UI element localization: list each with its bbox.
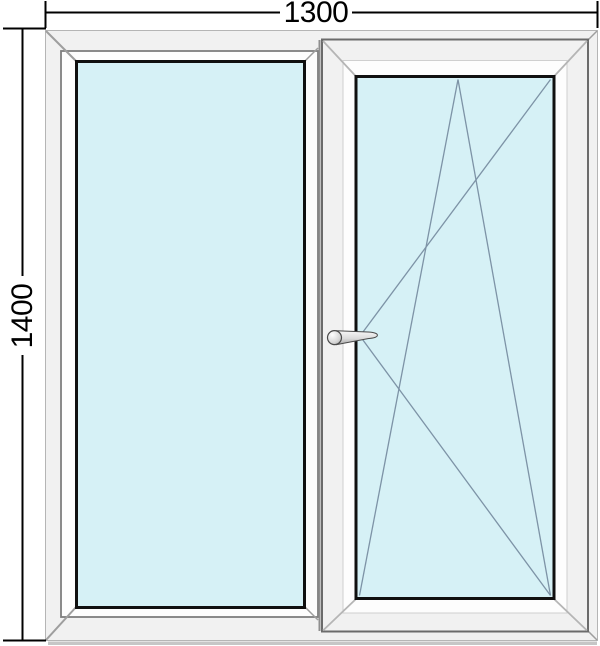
window-diagram: 1300 1400 [0, 0, 600, 646]
window-drawing-svg [0, 0, 600, 646]
fixed-pane-left [46, 31, 318, 640]
handle-knob [328, 331, 342, 345]
sash-right [320, 31, 598, 640]
fixed-pane-glass [77, 62, 305, 608]
sash-glass [356, 77, 554, 599]
frame-bottom-shadow [48, 642, 597, 646]
dimension-width-label: 1300 [284, 0, 349, 28]
dimension-height-label: 1400 [8, 284, 38, 349]
